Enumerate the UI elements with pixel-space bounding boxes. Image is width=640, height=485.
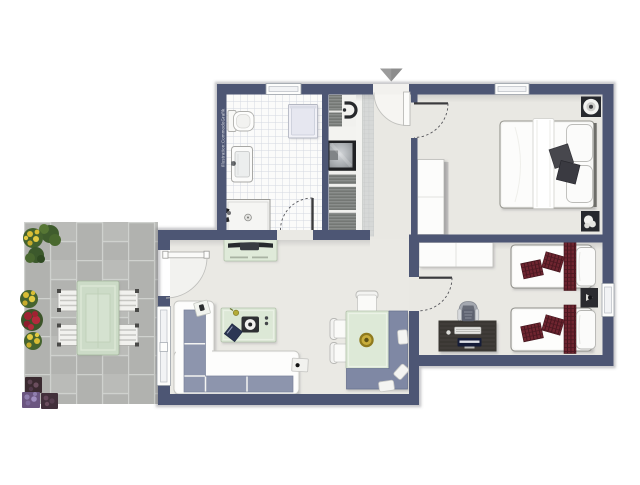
svg-text:Illustration:CommodoGrafik: Illustration:CommodoGrafik	[220, 108, 225, 167]
